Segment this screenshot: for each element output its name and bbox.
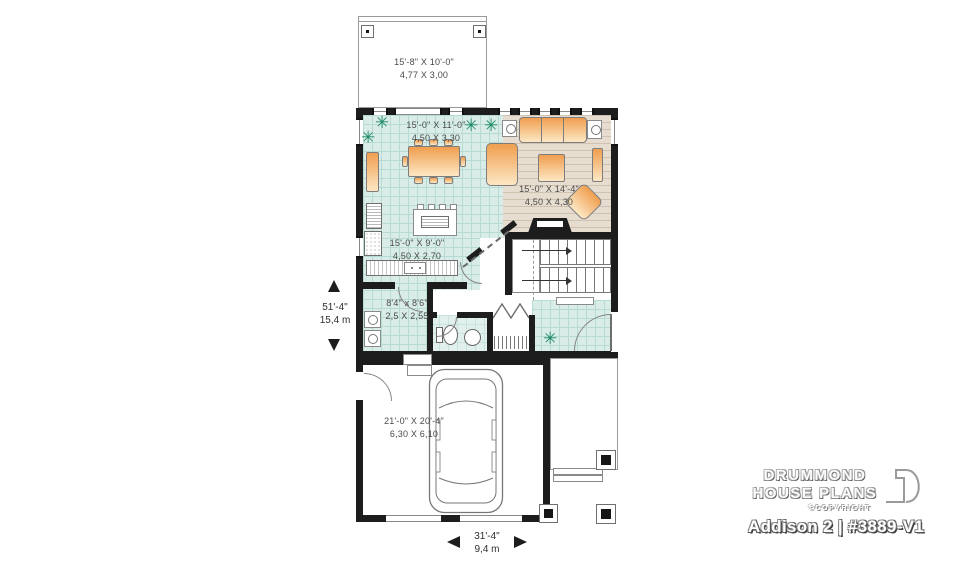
window-icon [580, 108, 594, 115]
coffee-table-icon [538, 154, 565, 182]
closet-hanger-rod-icon [494, 336, 528, 349]
entry-boundary-dashed [533, 240, 534, 300]
porch-step [553, 475, 603, 482]
island-grill-icon [421, 216, 449, 228]
lamp-icon [591, 125, 601, 135]
dining-size-imperial: 15'-0" X 11'-0" [406, 119, 465, 132]
tv-cabinet-icon [592, 148, 603, 182]
wall-stair-west [505, 232, 512, 295]
stairs-upper-flight [540, 239, 611, 265]
drummond-logo-icon [882, 466, 926, 508]
window-icon [498, 108, 512, 115]
plant-icon: ✳ [361, 129, 375, 146]
porch-post-icon [596, 450, 616, 470]
wall-closet-east [529, 315, 535, 352]
width-imperial: 31'-4" [462, 530, 512, 543]
porch-post-icon [539, 504, 558, 523]
buffet-icon [366, 152, 379, 192]
laundry-label: 8'4" x 8'6" 2,5 X 2,55 [385, 297, 428, 323]
plant-icon: ✳ [484, 117, 498, 134]
garage-door-icon [386, 515, 441, 522]
deck-post-icon [473, 25, 486, 38]
entry-bench [556, 297, 594, 305]
wall-kitchen-south-a [363, 282, 395, 289]
cooktop-icon [404, 262, 426, 274]
width-metric: 9,4 m [462, 543, 512, 556]
front-door-leaf [610, 314, 612, 351]
dimension-arrow-down-icon [328, 339, 340, 351]
armchair-icon [486, 143, 518, 186]
dryer-door-icon [368, 334, 378, 344]
deck-size-metric: 4,77 X 3,00 [394, 69, 454, 82]
chair-icon [414, 177, 423, 184]
laundry-size-imperial: 8'4" x 8'6" [385, 297, 428, 310]
deck-size-imperial: 15'-8" X 10'-0" [394, 56, 454, 69]
deck-post-icon [361, 25, 374, 38]
porch-post-icon [596, 504, 616, 524]
dimension-arrow-right-icon [514, 536, 527, 548]
chair-icon [444, 177, 453, 184]
chair-icon [429, 177, 438, 184]
living-size-metric: 4,50 X 4,30 [519, 196, 579, 209]
stool-icon [428, 204, 435, 210]
chair-icon [460, 156, 466, 167]
garage-size-imperial: 21'-0" X 20'-4" [384, 415, 444, 428]
living-label: 15'-0" X 14'-4" 4,50 X 4,30 [519, 183, 579, 209]
kitchen-size-metric: 4,50 X 2,70 [390, 250, 445, 263]
window-icon [538, 108, 552, 115]
dimension-arrow-up-icon [328, 280, 340, 292]
deck-label: 15'-8" X 10'-0" 4,77 X 3,00 [394, 56, 454, 82]
stool-icon [439, 204, 446, 210]
garage-label: 21'-0" X 20'-4" 6,30 X 6,10 [384, 415, 444, 441]
plant-icon: ✳ [543, 330, 557, 347]
garage-size-metric: 6,30 X 6,10 [384, 428, 444, 441]
patio-door-icon [394, 108, 442, 115]
garage-door-icon [460, 515, 522, 522]
brand-name-line1: DRUMMOND [755, 468, 875, 484]
car-icon [428, 368, 504, 514]
wall-living-stair [505, 232, 611, 239]
deck-railing-line [358, 21, 487, 22]
fireplace-opening [537, 221, 563, 227]
plant-icon: ✳ [375, 114, 389, 131]
width-dimension: 31'-4" 9,4 m [462, 530, 512, 556]
copyright-text: ©COPYRIGHT [790, 505, 890, 512]
refrigerator-icon [366, 203, 382, 229]
closet-bifold-door-icon [493, 303, 529, 319]
stool-icon [417, 204, 424, 210]
pantry-icon [364, 231, 382, 256]
plant-icon: ✳ [464, 117, 478, 134]
garage-side-door-opening [356, 372, 363, 400]
window-icon [448, 108, 464, 115]
window-icon [518, 108, 532, 115]
laundry-size-metric: 2,5 X 2,55 [385, 310, 428, 323]
living-size-imperial: 15'-0" X 14'-4" [519, 183, 579, 196]
dining-size-metric: 4,50 X 3,30 [406, 132, 465, 145]
dining-table-icon [408, 146, 460, 177]
stool-icon [450, 204, 457, 210]
kitchen-label: 15'-0" X 9'-0" 4,50 X 2,70 [390, 237, 445, 263]
stair-direction-arrow [522, 250, 566, 251]
stair-landing [512, 239, 540, 293]
garage-step [407, 365, 432, 376]
stair-direction-arrow [522, 280, 566, 281]
window-icon [611, 118, 618, 146]
wall-powder-east [487, 315, 493, 352]
window-icon [356, 236, 363, 258]
brand-name-line2: HOUSE PLANS [748, 486, 882, 502]
garage-step [403, 354, 432, 365]
kitchen-size-imperial: 15'-0" X 9'-0" [390, 237, 445, 250]
dimension-arrow-left-icon [447, 536, 460, 548]
front-door-opening [611, 312, 618, 352]
chair-icon [402, 156, 408, 167]
washer-door-icon [368, 315, 378, 325]
window-icon [558, 108, 572, 115]
sink-icon [464, 329, 481, 346]
dining-label: 15'-0" X 11'-0" 4,50 X 3,30 [406, 119, 465, 145]
wall-kitchen-south-b [427, 282, 467, 289]
lamp-icon [506, 124, 516, 134]
floor-plan-canvas: 15'-8" X 10'-0" 4,77 X 3,00 ✳ [0, 0, 960, 569]
plan-title: Addison 2 | #3889-V1 [748, 517, 924, 537]
sofa-icon [519, 117, 587, 143]
